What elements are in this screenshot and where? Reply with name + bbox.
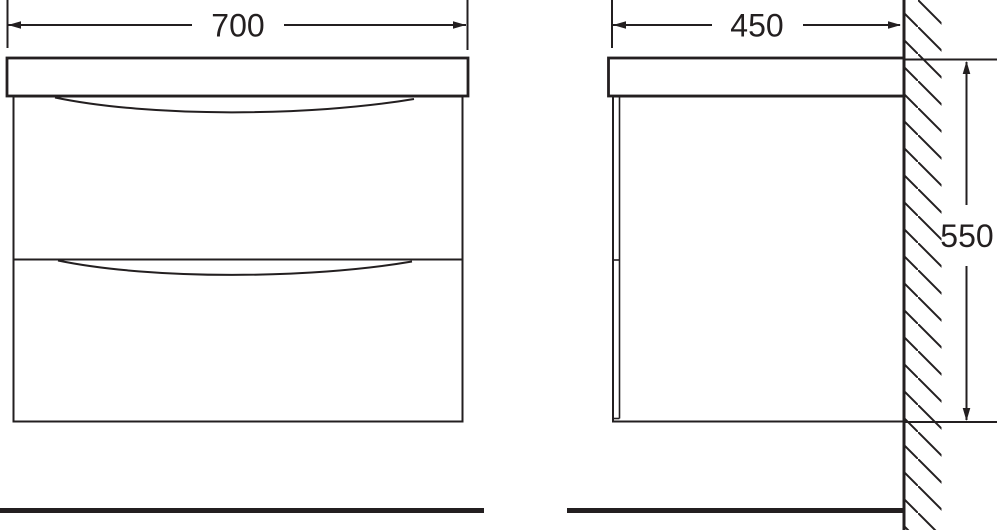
dim-arrow-down-icon	[963, 408, 971, 421]
side-view: 450	[567, 0, 904, 511]
wall-hatching	[906, 0, 942, 530]
dim-arrow-left-icon	[8, 21, 21, 29]
vanity-cabinet-drawing: 700 450	[0, 0, 1000, 530]
front-width-label: 700	[211, 8, 264, 44]
side-countertop-outline	[609, 58, 905, 96]
front-view: 700	[0, 0, 484, 511]
front-drawer2-handle-curve	[58, 261, 412, 275]
front-drawer1-handle-curve	[55, 98, 414, 113]
side-cabinet-body-outline	[613, 97, 904, 422]
dim-arrow-left-icon	[613, 21, 626, 29]
front-countertop-outline	[7, 58, 468, 96]
dim-arrow-right-icon	[888, 21, 901, 29]
dim-arrow-right-icon	[453, 21, 466, 29]
wall-section	[904, 0, 942, 530]
dim-arrow-up-icon	[963, 61, 971, 74]
technical-drawing-canvas: 700 450	[0, 0, 1000, 530]
side-depth-label: 450	[730, 8, 783, 44]
side-height-label: 550	[940, 218, 993, 254]
